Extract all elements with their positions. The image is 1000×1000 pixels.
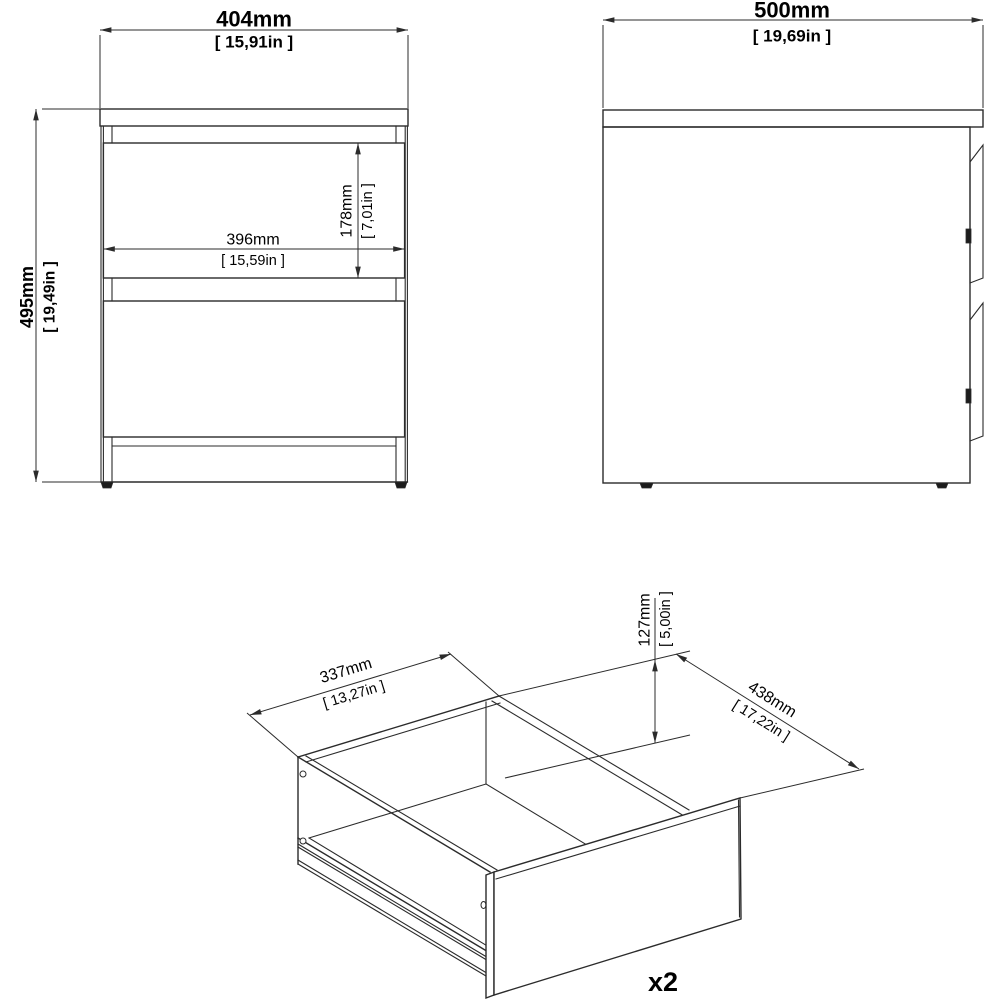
front-drawer-height-mm-label: 178mm xyxy=(339,184,356,237)
drawer-quantity-label: x2 xyxy=(648,967,678,997)
drawer-front-width-dimension: 438mm [ 17,22in ] xyxy=(676,654,864,798)
technical-drawing-sheet: 404mm [ 15,91in ] 495mm [ 19,49in ] xyxy=(0,0,1000,1000)
drawer-screw-hole-3 xyxy=(481,902,486,909)
front-width-in-label: [ 15,91in ] xyxy=(215,33,293,52)
side-depth-dimension: 500mm [ 19,69in ] xyxy=(603,0,983,108)
front-inner-width-in-label: [ 15,59in ] xyxy=(221,253,285,269)
front-height-in-label: [ 19,49in ] xyxy=(42,261,59,333)
drawer-screw-hole-2 xyxy=(300,838,306,844)
side-tabletop xyxy=(603,110,983,127)
drawer-screw-hole-1 xyxy=(300,771,306,777)
front-height-dimension: 495mm [ 19,49in ] xyxy=(17,109,101,482)
side-depth-mm-label: 500mm xyxy=(754,0,830,23)
drawer-front-panel xyxy=(486,798,741,998)
drawer-height-in-label: [ 5,00in ] xyxy=(658,591,674,647)
front-right-foot xyxy=(395,482,407,488)
side-front-foot xyxy=(936,483,948,488)
side-depth-in-label: [ 19,69in ] xyxy=(753,27,831,46)
front-left-foot xyxy=(101,482,113,488)
side-view: 500mm [ 19,69in ] xyxy=(603,0,983,488)
drawer-height-mm-label: 127mm xyxy=(637,593,654,646)
drawer-box-edges xyxy=(298,696,499,979)
side-drawer-2-profile xyxy=(970,303,983,441)
side-back-foot xyxy=(640,483,653,488)
drawer-front-panel-face xyxy=(494,798,741,995)
front-view: 404mm [ 15,91in ] 495mm [ 19,49in ] xyxy=(17,7,408,489)
drawer-height-dimension: 127mm [ 5,00in ] xyxy=(499,591,690,778)
front-tabletop xyxy=(100,109,408,126)
front-cabinet-structure xyxy=(100,109,408,488)
front-width-mm-label: 404mm xyxy=(216,7,292,32)
front-inner-width-mm-label: 396mm xyxy=(226,232,279,249)
drawer-isometric-view: 337mm [ 13,27in ] 127mm [ 5,00in ] 438mm… xyxy=(247,591,864,998)
drawer-front-panel-edge xyxy=(486,872,494,998)
front-height-mm-label: 495mm xyxy=(17,266,37,328)
side-drawer-2-groove xyxy=(966,389,971,403)
front-drawer-2 xyxy=(103,301,404,437)
front-drawer-height-dimension: 178mm [ 7,01in ] xyxy=(339,143,377,278)
side-cabinet-structure xyxy=(603,110,983,488)
side-body-panel xyxy=(603,127,970,483)
side-drawer-1-groove xyxy=(966,229,971,243)
side-drawer-1-profile xyxy=(970,145,983,283)
front-width-dimension: 404mm [ 15,91in ] xyxy=(100,7,408,109)
front-drawer-height-in-label: [ 7,01in ] xyxy=(360,183,376,239)
furniture-dimension-diagram: 404mm [ 15,91in ] 495mm [ 19,49in ] xyxy=(0,0,1000,1000)
